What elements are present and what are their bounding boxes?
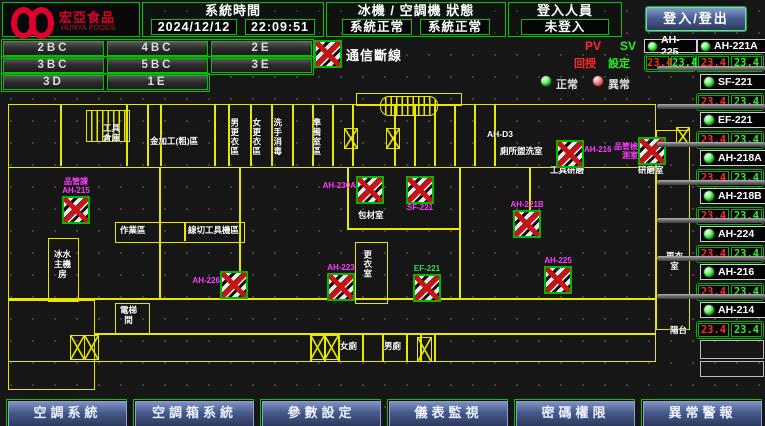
map-wall: [459, 168, 461, 299]
value-pair: 23.423.4: [696, 321, 764, 339]
room-label: 包材室: [358, 211, 384, 221]
status-led-icon: [703, 266, 715, 278]
stair-x-icon: [310, 335, 325, 360]
column-rail: [657, 142, 765, 147]
map-wall: [184, 223, 186, 241]
room-label: AH-D3: [487, 130, 513, 140]
map-unit-label: AH-226: [176, 277, 220, 286]
stair-x-icon: [386, 128, 400, 149]
status-led-icon: [703, 228, 715, 240]
map-wall: [347, 168, 349, 229]
map-unit-label: AH-221B: [497, 201, 557, 210]
room-label: 電梯 間: [120, 306, 137, 326]
room-label: 廁所盥洗室: [500, 147, 543, 157]
equipment-name: AH-218B: [718, 190, 762, 202]
status-led-icon: [703, 304, 715, 316]
status-led-icon: [703, 152, 715, 164]
map-unit-label: AH-225: [528, 257, 588, 266]
room-label: 作業區: [120, 226, 146, 236]
room-label: 女更衣區: [251, 118, 261, 156]
map-wall: [159, 168, 161, 299]
map-unit-label: 品管檢 測室: [594, 143, 638, 161]
room-label: 女廁: [340, 342, 357, 352]
room-label: 線切工具機區: [188, 226, 239, 236]
map-unit-ah-230a[interactable]: AH-230A: [356, 176, 384, 204]
floor-plan-map: 工具 倉庫金加工(粗)區男更衣區女更衣區洗手消毒準備室區AH-D3廁所盥洗室工具…: [0, 0, 765, 426]
map-unit-label: EF-221: [397, 265, 457, 274]
equipment-ef-221[interactable]: EF-221: [700, 112, 765, 128]
map-wall: [147, 104, 149, 166]
map-unit-sf-221[interactable]: SF-221: [406, 176, 434, 204]
map-wall: [60, 104, 62, 166]
column-rail: [657, 294, 765, 299]
map-unit-ef-221[interactable]: EF-221: [413, 274, 441, 302]
stair-x-icon: [344, 128, 358, 149]
toolbar-button-meter-monitor[interactable]: 儀表監視: [389, 401, 508, 426]
map-unit-ah-226[interactable]: AH-226: [220, 271, 248, 299]
pv-value: 23.4: [698, 323, 729, 337]
toolbar-button-ahu-system[interactable]: 空調箱系統: [135, 401, 254, 426]
equipment-sf-221[interactable]: SF-221: [700, 74, 765, 90]
map-unit-ah-221b[interactable]: AH-221B: [513, 210, 541, 238]
equipment-name: AH-218A: [718, 152, 762, 164]
room-label: 準備室區: [311, 118, 321, 156]
room-label: 金加工(粗)區: [150, 137, 198, 147]
equipment-ah-216[interactable]: AH-216: [700, 264, 765, 280]
stair-x-icon: [70, 335, 85, 360]
driveway-icon: [380, 96, 438, 116]
toolbar-frame: 儀表監視: [387, 399, 508, 426]
toolbar-button-ac-system[interactable]: 空調系統: [8, 401, 127, 426]
map-wall: [362, 334, 364, 362]
toolbar-button-parameter-settings[interactable]: 參數設定: [262, 401, 381, 426]
room-label: 冰水 主機 房: [54, 250, 71, 279]
map-unit-label: AH-230A: [312, 182, 356, 191]
room-label: 工具 倉庫: [103, 124, 120, 144]
stair-x-icon: [324, 335, 339, 360]
equipment-ah-218b[interactable]: AH-218B: [700, 188, 765, 204]
map-unit-label: 品管課 AH-215: [46, 178, 106, 196]
sv-value[interactable]: 23.4: [731, 323, 762, 337]
map-unit-label: AH-223: [311, 264, 371, 273]
stair-x-icon: [84, 335, 99, 360]
column-rail: [657, 66, 765, 71]
status-led-icon: [703, 114, 715, 126]
map-unit-ah-225[interactable]: AH-225: [544, 266, 572, 294]
toolbar-frame: 異常警報: [641, 399, 762, 426]
map-unit-ah-215[interactable]: 品管課 AH-215: [62, 196, 90, 224]
equipment-ah-214[interactable]: AH-214: [700, 302, 765, 318]
status-led-icon: [703, 76, 715, 88]
map-unit-ah-216[interactable]: AH-216: [556, 140, 584, 168]
room-label: 男廁: [384, 342, 401, 352]
status-led-icon: [703, 190, 715, 202]
map-wall: [474, 104, 476, 166]
map-unit-label: SF-221: [390, 204, 450, 213]
room-label: 男更衣區: [229, 118, 239, 156]
room-label: 更衣 室: [666, 252, 683, 272]
room-label: 洗手消毒: [272, 118, 282, 156]
map-wall: [406, 334, 408, 362]
equipment-ah-218a[interactable]: AH-218A: [700, 150, 765, 166]
hmi-screen: 宏亞食品 HUNYA FOODS 系統時間 2024/12/12 22:09:5…: [0, 0, 765, 426]
map-wall: [434, 334, 436, 362]
map-wall: [454, 104, 456, 166]
equipment-name: EF-221: [718, 114, 752, 126]
equipment-name: SF-221: [718, 76, 752, 88]
room-label: 陽台: [670, 326, 687, 336]
equipment-name: AH-224: [718, 228, 754, 240]
map-wall: [214, 104, 216, 166]
toolbar-frame: 空調系統: [6, 399, 127, 426]
map-wall: [347, 228, 461, 230]
equipment-name: AH-216: [718, 266, 754, 278]
empty-slot: [700, 361, 764, 377]
toolbar-frame: 密碼權限: [514, 399, 635, 426]
equipment-name: AH-214: [718, 304, 754, 316]
toolbar-button-password-permission[interactable]: 密碼權限: [516, 401, 635, 426]
column-rail: [657, 218, 765, 223]
column-rail: [657, 104, 765, 109]
map-wall: [332, 104, 334, 166]
column-rail: [657, 180, 765, 185]
equipment-ah-224[interactable]: AH-224: [700, 226, 765, 242]
stair-x-icon: [417, 337, 432, 362]
map-wall: [292, 104, 294, 166]
map-wall: [95, 333, 656, 335]
toolbar-button-alarm[interactable]: 異常警報: [643, 401, 762, 426]
column-rail: [657, 256, 765, 261]
map-wall: [160, 104, 162, 166]
map-unit-ah-223[interactable]: AH-223: [327, 273, 355, 301]
toolbar-frame: 參數設定: [260, 399, 381, 426]
room-label: 研磨室: [638, 166, 664, 176]
toolbar-frame: 空調箱系統: [133, 399, 254, 426]
empty-slot: [700, 340, 764, 359]
